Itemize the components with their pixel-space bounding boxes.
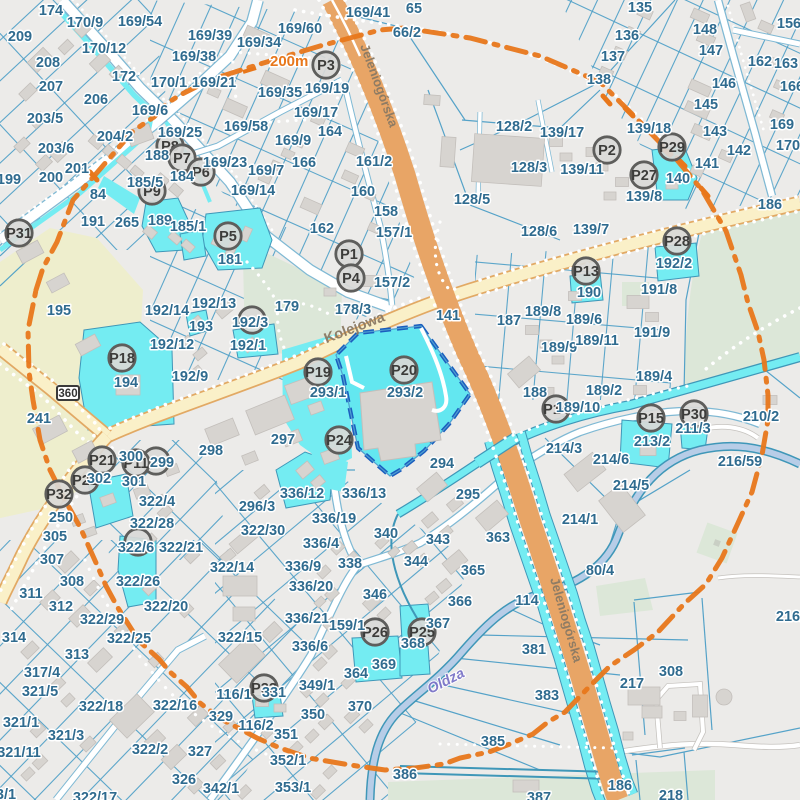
svg-text:189/8: 189/8 <box>525 304 561 320</box>
svg-text:P28: P28 <box>664 234 690 250</box>
svg-text:210/2: 210/2 <box>743 409 779 425</box>
svg-text:189/11: 189/11 <box>575 333 619 349</box>
svg-text:181: 181 <box>218 252 242 268</box>
svg-text:336/4: 336/4 <box>303 536 339 552</box>
svg-text:386: 386 <box>393 767 417 783</box>
svg-text:340: 340 <box>374 526 398 542</box>
svg-text:199: 199 <box>0 172 21 188</box>
svg-text:369: 369 <box>372 657 396 673</box>
svg-text:322/20: 322/20 <box>144 599 188 615</box>
svg-text:353/1: 353/1 <box>275 780 311 796</box>
svg-text:216/: 216/ <box>776 609 800 625</box>
svg-text:192/14: 192/14 <box>145 303 189 319</box>
svg-text:P13: P13 <box>573 264 599 280</box>
svg-text:343: 343 <box>426 532 450 548</box>
svg-text:128/5: 128/5 <box>454 192 490 208</box>
svg-text:179: 179 <box>275 299 299 315</box>
svg-text:P31: P31 <box>6 226 32 242</box>
svg-text:139/17: 139/17 <box>540 125 584 141</box>
svg-text:189/10: 189/10 <box>556 400 600 416</box>
svg-text:293/1: 293/1 <box>310 385 346 401</box>
svg-text:157/2: 157/2 <box>374 275 410 291</box>
svg-text:139/8: 139/8 <box>626 189 662 205</box>
svg-text:206: 206 <box>84 92 108 108</box>
svg-text:169/21: 169/21 <box>192 75 236 91</box>
svg-text:336/12: 336/12 <box>280 486 324 502</box>
svg-text:169/41: 169/41 <box>346 5 390 21</box>
svg-text:336/20: 336/20 <box>289 579 333 595</box>
svg-text:136: 136 <box>615 28 639 44</box>
svg-text:192/13: 192/13 <box>192 296 236 312</box>
svg-text:139/11: 139/11 <box>560 162 604 178</box>
svg-text:321/1: 321/1 <box>3 715 39 731</box>
svg-text:338: 338 <box>338 556 362 572</box>
svg-text:190: 190 <box>577 285 601 301</box>
svg-text:169: 169 <box>770 117 794 133</box>
svg-text:169/23: 169/23 <box>203 155 247 171</box>
svg-text:192/9: 192/9 <box>172 369 208 385</box>
svg-text:305: 305 <box>43 529 67 545</box>
svg-text:200m: 200m <box>270 53 308 70</box>
svg-text:164: 164 <box>318 124 342 140</box>
svg-text:189/2: 189/2 <box>586 383 622 399</box>
svg-text:214/5: 214/5 <box>613 478 649 494</box>
svg-text:138: 138 <box>587 72 611 88</box>
svg-text:158: 158 <box>374 204 398 220</box>
svg-text:241: 241 <box>27 411 51 427</box>
svg-text:363: 363 <box>486 530 510 546</box>
svg-text:170/: 170/ <box>776 138 800 154</box>
svg-text:321/3: 321/3 <box>48 728 84 744</box>
svg-text:322/30: 322/30 <box>241 523 285 539</box>
svg-text:265: 265 <box>115 215 139 231</box>
svg-text:322/21: 322/21 <box>159 540 203 556</box>
svg-text:186: 186 <box>758 197 782 213</box>
svg-text:157/1: 157/1 <box>376 225 412 241</box>
svg-text:189/4: 189/4 <box>636 369 672 385</box>
svg-text:336/21: 336/21 <box>285 611 329 627</box>
svg-text:P3: P3 <box>317 58 335 74</box>
svg-text:P15: P15 <box>638 411 664 427</box>
svg-text:188: 188 <box>523 385 547 401</box>
svg-text:344: 344 <box>404 554 428 570</box>
svg-text:342/1: 342/1 <box>203 781 239 797</box>
svg-text:312: 312 <box>49 599 73 615</box>
svg-text:191/8: 191/8 <box>641 282 677 298</box>
svg-text:169/6: 169/6 <box>132 103 168 119</box>
svg-text:203/6: 203/6 <box>38 141 74 157</box>
svg-text:322/4: 322/4 <box>139 494 175 510</box>
svg-text:314: 314 <box>2 630 26 646</box>
svg-text:299: 299 <box>150 455 174 471</box>
svg-text:308: 308 <box>659 664 683 680</box>
svg-text:368: 368 <box>401 636 425 652</box>
svg-text:170/12: 170/12 <box>82 41 126 57</box>
svg-text:322/16: 322/16 <box>153 698 197 714</box>
svg-text:294: 294 <box>430 456 454 472</box>
svg-text:148: 148 <box>693 22 717 38</box>
svg-text:295: 295 <box>456 487 480 503</box>
svg-text:209: 209 <box>8 29 32 45</box>
svg-text:387: 387 <box>527 790 551 800</box>
svg-text:192/3: 192/3 <box>232 315 268 331</box>
svg-text:P19: P19 <box>305 365 331 381</box>
svg-text:200: 200 <box>39 170 63 186</box>
svg-text:185/5: 185/5 <box>127 175 163 191</box>
svg-text:192/1: 192/1 <box>230 338 266 354</box>
svg-text:174: 174 <box>39 3 63 19</box>
svg-text:P5: P5 <box>219 229 237 245</box>
svg-text:364: 364 <box>344 666 368 682</box>
svg-text:351: 351 <box>274 727 298 743</box>
svg-text:147: 147 <box>699 43 723 59</box>
svg-text:381: 381 <box>522 642 546 658</box>
svg-text:142: 142 <box>727 143 751 159</box>
svg-text:193: 193 <box>189 319 213 335</box>
svg-text:322/2: 322/2 <box>132 742 168 758</box>
svg-text:178/3: 178/3 <box>335 302 371 318</box>
svg-text:214/3: 214/3 <box>546 441 582 457</box>
svg-text:162: 162 <box>748 54 772 70</box>
svg-text:189/9: 189/9 <box>541 340 577 356</box>
svg-text:301: 301 <box>122 474 146 490</box>
svg-text:169/7: 169/7 <box>248 163 284 179</box>
svg-text:166: 166 <box>292 155 316 171</box>
svg-text:P21: P21 <box>89 453 115 469</box>
svg-text:331: 331 <box>262 685 286 701</box>
svg-text:66/2: 66/2 <box>393 25 421 41</box>
svg-text:370: 370 <box>348 699 372 715</box>
svg-text:383: 383 <box>535 688 559 704</box>
svg-text:322/29: 322/29 <box>80 612 124 628</box>
svg-text:128/3: 128/3 <box>511 160 547 176</box>
svg-text:169/58: 169/58 <box>224 119 268 135</box>
svg-text:321/5: 321/5 <box>22 684 58 700</box>
svg-text:135: 135 <box>628 0 652 16</box>
svg-text:208: 208 <box>36 55 60 71</box>
svg-text:170/9: 170/9 <box>67 15 103 31</box>
svg-text:307: 307 <box>40 552 64 568</box>
svg-text:169/54: 169/54 <box>118 14 162 30</box>
svg-text:P7: P7 <box>173 151 191 167</box>
svg-text:P20: P20 <box>391 363 417 379</box>
svg-text:336/19: 336/19 <box>312 511 356 527</box>
svg-text:189: 189 <box>148 213 172 229</box>
svg-text:P29: P29 <box>659 140 685 156</box>
svg-text:217: 217 <box>620 676 644 692</box>
svg-text:169/34: 169/34 <box>237 35 281 51</box>
svg-text:139/18: 139/18 <box>627 121 671 137</box>
svg-text:350: 350 <box>301 707 325 723</box>
svg-text:191/9: 191/9 <box>634 325 670 341</box>
svg-text:146: 146 <box>712 76 736 92</box>
svg-text:170/1: 170/1 <box>151 75 187 91</box>
svg-text:311: 311 <box>19 586 42 602</box>
svg-text:65: 65 <box>406 1 422 17</box>
svg-text:P4: P4 <box>342 271 360 287</box>
svg-text:114: 114 <box>515 593 538 609</box>
svg-text:336/6: 336/6 <box>292 639 328 655</box>
svg-text:313: 313 <box>65 647 89 663</box>
svg-text:203/5: 203/5 <box>27 111 63 127</box>
svg-text:156: 156 <box>777 16 800 32</box>
svg-text:213/2: 213/2 <box>634 434 670 450</box>
svg-text:128/6: 128/6 <box>521 224 557 240</box>
svg-text:186: 186 <box>608 778 632 794</box>
svg-text:169/14: 169/14 <box>231 183 275 199</box>
svg-text:187: 187 <box>497 313 521 329</box>
svg-text:367: 367 <box>426 616 450 632</box>
svg-text:169/9: 169/9 <box>275 133 311 149</box>
svg-text:P18: P18 <box>109 351 135 367</box>
svg-text:322/17: 322/17 <box>73 790 117 800</box>
svg-text:329: 329 <box>209 709 233 725</box>
svg-text:302: 302 <box>87 471 111 487</box>
svg-text:189/6: 189/6 <box>566 312 602 328</box>
svg-text:336/9: 336/9 <box>285 559 321 575</box>
svg-text:214/1: 214/1 <box>562 512 598 528</box>
svg-text:326: 326 <box>172 772 196 788</box>
svg-text:169/60: 169/60 <box>278 21 322 37</box>
svg-text:P32: P32 <box>46 487 72 503</box>
svg-text:191: 191 <box>81 214 105 230</box>
svg-text:169/25: 169/25 <box>158 125 202 141</box>
svg-text:169/17: 169/17 <box>294 105 338 121</box>
svg-text:216/59: 216/59 <box>718 454 762 470</box>
svg-text:250: 250 <box>49 510 73 526</box>
svg-text:P2: P2 <box>598 143 616 159</box>
svg-text:P1: P1 <box>340 247 358 263</box>
svg-text:169/38: 169/38 <box>172 49 216 65</box>
svg-text:298: 298 <box>199 443 223 459</box>
svg-text:140: 140 <box>666 171 690 187</box>
svg-text:296/3: 296/3 <box>239 499 275 515</box>
svg-text:169/39: 169/39 <box>188 28 232 44</box>
svg-text:3/1: 3/1 <box>0 787 16 800</box>
svg-text:336/13: 336/13 <box>342 486 386 502</box>
svg-text:365: 365 <box>461 563 485 579</box>
svg-text:321/11: 321/11 <box>0 745 41 761</box>
svg-text:346: 346 <box>363 587 387 603</box>
svg-text:161/2: 161/2 <box>356 154 392 170</box>
svg-text:214/6: 214/6 <box>593 452 629 468</box>
svg-text:204/2: 204/2 <box>97 129 133 145</box>
svg-text:172: 172 <box>112 69 136 85</box>
svg-text:385: 385 <box>481 734 505 750</box>
svg-text:185/1: 185/1 <box>170 219 206 235</box>
svg-text:160: 160 <box>351 184 375 200</box>
svg-text:P26: P26 <box>362 625 388 641</box>
svg-text:141: 141 <box>695 156 719 172</box>
svg-text:322/18: 322/18 <box>79 699 123 715</box>
svg-text:192/2: 192/2 <box>656 256 692 272</box>
svg-text:169/35: 169/35 <box>258 85 302 101</box>
svg-text:194: 194 <box>114 375 138 391</box>
svg-text:308: 308 <box>60 574 84 590</box>
svg-text:116/2: 116/2 <box>238 718 274 734</box>
svg-text:322/15: 322/15 <box>218 630 262 646</box>
svg-text:300: 300 <box>119 449 143 465</box>
svg-text:218: 218 <box>659 788 683 800</box>
svg-text:137: 137 <box>601 49 625 65</box>
svg-text:360: 360 <box>58 388 77 400</box>
svg-text:84: 84 <box>90 187 106 203</box>
svg-text:293/2: 293/2 <box>387 385 423 401</box>
svg-text:145: 145 <box>694 97 718 113</box>
svg-text:322/28: 322/28 <box>130 516 174 532</box>
svg-text:159/1: 159/1 <box>329 618 365 634</box>
svg-text:162: 162 <box>310 221 334 237</box>
svg-text:195: 195 <box>47 303 71 319</box>
svg-text:P27: P27 <box>631 168 657 184</box>
svg-text:188: 188 <box>145 148 169 164</box>
svg-text:P24: P24 <box>326 433 352 449</box>
svg-text:322/25: 322/25 <box>107 631 151 647</box>
svg-text:163: 163 <box>774 56 798 72</box>
svg-text:143: 143 <box>703 124 727 140</box>
svg-text:317/4: 317/4 <box>24 665 60 681</box>
svg-text:169/19: 169/19 <box>305 81 349 97</box>
svg-text:366: 366 <box>448 594 472 610</box>
svg-text:327: 327 <box>188 744 212 760</box>
svg-text:80/4: 80/4 <box>586 563 614 579</box>
svg-text:352/1: 352/1 <box>270 753 306 769</box>
svg-text:184: 184 <box>170 169 194 185</box>
svg-text:207: 207 <box>39 79 63 95</box>
svg-text:349/1: 349/1 <box>299 678 335 694</box>
svg-text:322/14: 322/14 <box>210 560 254 576</box>
svg-text:141: 141 <box>436 308 460 324</box>
svg-text:192/12: 192/12 <box>150 337 194 353</box>
svg-text:128/2: 128/2 <box>496 119 532 135</box>
svg-text:139/7: 139/7 <box>573 222 609 238</box>
svg-text:116/1: 116/1 <box>216 687 252 703</box>
svg-text:201: 201 <box>65 161 89 177</box>
svg-text:211/3: 211/3 <box>675 421 711 437</box>
svg-text:166: 166 <box>780 79 800 95</box>
svg-text:322/6: 322/6 <box>118 540 154 556</box>
svg-text:322/26: 322/26 <box>116 574 160 590</box>
svg-text:297: 297 <box>271 432 295 448</box>
